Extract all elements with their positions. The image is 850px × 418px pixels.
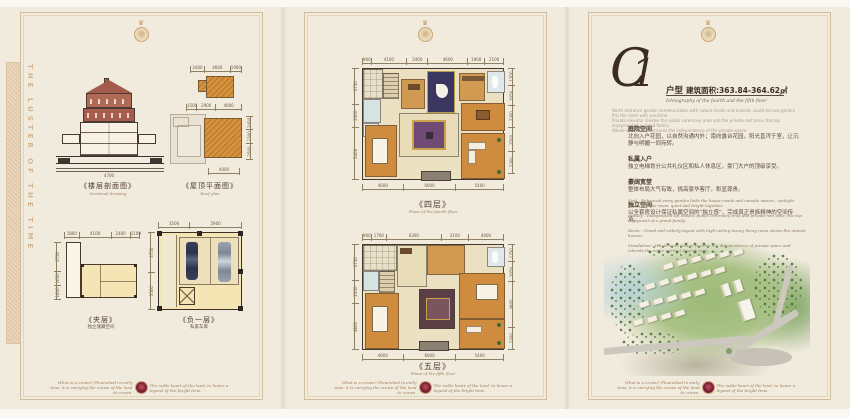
section-wing-right <box>138 134 156 144</box>
dim-value: 4800 <box>352 304 359 349</box>
dim-value: 2500 <box>246 144 253 159</box>
dim-segment: 4000 <box>215 104 242 111</box>
dim-value: 2400 <box>191 65 204 70</box>
hallway <box>397 245 427 287</box>
plant-icon <box>497 341 501 345</box>
dim-value: 2300 <box>352 281 359 303</box>
dim-value: 5900 <box>190 221 241 226</box>
column <box>238 231 243 236</box>
dim-segment: 900 <box>362 234 371 241</box>
crest-icon: ♛ <box>133 20 149 42</box>
dim-value: 2050 <box>508 86 515 105</box>
dim-value: 1800 <box>65 231 79 236</box>
dim-segment: 5400 <box>455 354 504 361</box>
dim-segment: 900 <box>362 58 371 65</box>
grand-piano <box>436 84 448 98</box>
crest-icon: ♛ <box>700 20 716 42</box>
roundabout <box>722 344 736 358</box>
page-edge-top <box>0 0 850 7</box>
dim-line: 1750205048002300 <box>508 244 515 350</box>
dim-value: 4600 <box>205 65 230 70</box>
selling-point-head: 豪阔宽堂 <box>628 179 802 187</box>
dim-segment: 5400 <box>455 184 504 191</box>
dim-value: 1650 <box>54 272 61 284</box>
dim-segment: 4600 <box>362 354 403 361</box>
dim-value: 2300 <box>508 328 515 349</box>
dim-value: 5400 <box>456 183 503 188</box>
dim-value: 6000 <box>404 353 456 358</box>
dim-line: 17002050230025002300 <box>508 68 515 174</box>
caption-sub: Roof plan <box>166 191 254 196</box>
dim-segment: 3750 <box>54 242 61 271</box>
dim-value: 3750 <box>148 233 155 272</box>
dim-value: 4100 <box>80 231 111 236</box>
dim-segment: 6000 <box>403 354 456 361</box>
floorplan-5f <box>362 244 504 350</box>
kitchen <box>459 73 485 101</box>
section-base-block <box>58 158 70 163</box>
dim-segment: 3100 <box>441 234 468 241</box>
sofa <box>466 326 482 333</box>
section-ground-lines <box>56 168 164 172</box>
panel-footer: What is a crown? Flourished in early tim… <box>41 380 241 395</box>
panel-footer: What is a crown? Flourished in early tim… <box>608 380 808 395</box>
dim-value: 2050 <box>246 117 253 129</box>
selling-point-body: 独立电梯划分公共礼仪区和私人休息区，豪门大户的顶级享受。 <box>628 164 802 171</box>
caption-mezzanine: 《夹层》 独立储藏空间 <box>54 316 148 331</box>
dim-segment: 2050 <box>508 261 515 281</box>
dim-value: 1800 <box>54 286 61 300</box>
section-windows <box>87 113 131 118</box>
caption-sub: Plane of the fourth floor <box>350 209 516 214</box>
dim-value: 4000 <box>209 167 239 172</box>
caption-roof: 《屋顶平面图》 Roof plan <box>166 182 254 196</box>
lightwell-room <box>161 235 177 307</box>
staircase <box>379 271 395 293</box>
entry-porch <box>421 171 451 181</box>
dim-value: 2400 <box>112 231 130 236</box>
dim-value: 2100 <box>485 57 503 62</box>
dim-segment: 1750 <box>508 244 515 261</box>
dim-value: 4000 <box>469 233 503 238</box>
dim-segment: 4600 <box>362 184 403 191</box>
dim-segment: 2400 <box>111 232 130 239</box>
car-icon <box>218 242 231 282</box>
plant-icon <box>497 170 501 174</box>
dim-segment: 4800 <box>352 303 359 350</box>
brochure-page: THE LUSTER OF THE TIME ♛ ♛ ♛ 4700 《楼层剖面图… <box>0 0 850 418</box>
panel-footer: What is a crown? Flourished in early tim… <box>325 380 525 395</box>
dim-segment: 2300 <box>508 327 515 350</box>
bed <box>476 284 498 300</box>
english-note-line: Yard : Enhanced entry garden links the h… <box>628 198 806 208</box>
dim-value: 3100 <box>442 233 468 238</box>
coffee-table <box>426 132 433 139</box>
dim-segment: 2050 <box>246 116 253 129</box>
dim-segment: 2400 <box>406 58 427 65</box>
english-note-line: Privacy : Independent lift divides publi… <box>628 213 806 223</box>
car-icon <box>186 242 198 280</box>
selling-point: 豪阔宽堂 整体布局大气有致，挑高豪华客厅，彰显尊贵。 <box>628 179 802 194</box>
dim-line: 37503500 <box>148 232 155 310</box>
dim-value: 2400 <box>407 57 427 62</box>
sofa <box>468 150 476 164</box>
dim-value: 4000 <box>216 103 241 108</box>
fold-line <box>280 7 286 409</box>
footer-script-right: The noble heart of the land, to honor a … <box>150 383 234 393</box>
floorplan-4f <box>362 68 504 180</box>
column <box>134 264 137 267</box>
dim-segment: 4100 <box>79 232 111 239</box>
caption-sub: Sectional drawing <box>52 191 164 196</box>
dim-segment: 2300 <box>246 129 253 143</box>
dim-value: 900 <box>363 233 371 238</box>
dim-value: 1700 <box>372 233 386 238</box>
dim-value: 4600 <box>363 183 403 188</box>
dim-segment: 2900 <box>196 104 215 111</box>
roundabout-green <box>726 348 732 354</box>
bathtub <box>492 251 498 263</box>
seal-icon <box>136 382 147 393</box>
dim-segment: 1900 <box>467 58 484 65</box>
column <box>238 269 243 274</box>
dim-value: 2300 <box>508 106 515 127</box>
dim-segment: 3750 <box>148 232 155 272</box>
dim-value: 3750 <box>352 245 359 280</box>
terrace <box>363 245 397 271</box>
dim-value: 2500 <box>508 128 515 151</box>
decorative-strip <box>6 62 21 344</box>
dim-line: 375023004800 <box>352 244 359 350</box>
piano-room <box>427 71 455 113</box>
dim-line: 375023005400 <box>352 68 359 180</box>
mezzanine-room <box>81 264 137 298</box>
column <box>81 264 84 267</box>
dim-segment: 1900 <box>230 66 242 73</box>
caption-sub: 独立储藏空间 <box>54 325 148 331</box>
caption-sub: 私家车库 <box>148 325 250 331</box>
dim-value: 1750 <box>508 245 515 261</box>
seal-icon <box>420 382 431 393</box>
sofa <box>468 142 486 150</box>
caption-label: 《负一层》 <box>148 316 250 325</box>
basement-plan <box>158 232 242 310</box>
fold-line <box>564 7 570 409</box>
dim-value: 2900 <box>197 103 215 108</box>
selling-point-head: 庭院空间 <box>628 126 802 134</box>
unit-logo: C1 <box>610 46 656 93</box>
master-bedroom <box>365 125 397 177</box>
column <box>134 295 137 298</box>
selling-point: 私属入户 独立电梯划分公共礼仪区和私人休息区，豪门大户的顶级享受。 <box>628 156 802 171</box>
dim-line: 205023002500 <box>246 116 253 160</box>
dim-line: 460060005400 <box>362 184 504 191</box>
selling-point: 庭院空间 北向入户花园，以自然沟通内外；南向露台花园，阳光直泻于室，让沉静与明媚… <box>628 126 802 148</box>
dining-table <box>476 110 490 120</box>
living-hall <box>399 113 459 157</box>
aerial-rendering <box>604 236 810 376</box>
dim-value: 1900 <box>468 57 484 62</box>
dim-segment: 3750 <box>352 68 359 104</box>
roof-outline <box>173 117 189 127</box>
dim-line: 9001700630031004000 <box>362 234 504 241</box>
dim-segment: 2300 <box>508 151 515 174</box>
section-base-block <box>150 158 162 163</box>
dim-segment: 1800 <box>54 285 61 301</box>
dim-line: 1800410024001100 <box>64 232 140 239</box>
dim-value: 5400 <box>352 128 359 179</box>
dim-segment: 2050 <box>508 85 515 105</box>
dining-room <box>461 103 505 131</box>
dim-value: 2300 <box>352 105 359 127</box>
section-total-dim: 4700 <box>86 173 132 178</box>
column <box>157 231 162 236</box>
dim-value: 4100 <box>372 57 407 62</box>
caption-sub: Plane of the fifth floor <box>350 371 516 376</box>
bathroom <box>363 271 379 291</box>
unit-subtitle: Ichnography of the fourth and the fifth … <box>666 99 767 104</box>
footer-script-right: The noble heart of the land, to honor a … <box>717 383 801 393</box>
caption-label: 《屋顶平面图》 <box>166 182 254 191</box>
dim-segment: 1700 <box>508 68 515 85</box>
crown-icon: ♛ <box>133 20 149 27</box>
crown-icon: ♛ <box>417 20 433 27</box>
footer-script-left: What is a crown? Flourished in early tim… <box>616 380 700 395</box>
dim-line: 375016501800 <box>54 242 61 300</box>
section-base <box>56 156 164 164</box>
page-edge-bottom <box>0 409 850 418</box>
crest-icon: ♛ <box>417 20 433 42</box>
counter <box>462 76 484 81</box>
dim-segment: 1800 <box>64 232 79 239</box>
dim-value: 1500 <box>187 103 196 108</box>
dim-line: 4000 <box>208 168 240 175</box>
logo-digit: 1 <box>632 51 656 95</box>
seal-icon <box>703 382 714 393</box>
wall-line <box>100 281 136 282</box>
garage-divider <box>210 238 211 284</box>
staircase <box>383 73 399 99</box>
dim-value: 1100 <box>131 231 139 236</box>
dim-value: 3500 <box>159 221 189 226</box>
road-interchange <box>730 348 792 366</box>
dim-segment: 2300 <box>508 105 515 127</box>
caption-basement: 《负一层》 私家车库 <box>148 316 250 331</box>
dim-line: 240046001900 <box>190 66 242 73</box>
master-bedroom <box>365 293 399 349</box>
dim-value: 1900 <box>231 65 241 70</box>
crown-icon: ♛ <box>700 20 716 27</box>
dim-segment: 4600 <box>204 66 230 73</box>
footer-script-left: What is a crown? Flourished in early tim… <box>49 380 133 395</box>
caption-label: 《四层》 <box>350 200 516 209</box>
dim-segment: 4100 <box>371 58 407 65</box>
selling-point-body: 北向入户花园，以自然沟通内外；南向露台花园，阳光直泻于室，让沉静与明媚一同宛转。 <box>628 134 802 148</box>
family-room <box>427 245 465 275</box>
dim-value: 4800 <box>508 282 515 326</box>
desk <box>408 84 420 90</box>
dim-segment: 2300 <box>352 104 359 127</box>
dim-value: 1700 <box>508 69 515 85</box>
crest-disc <box>418 27 433 42</box>
dim-segment: 4000 <box>468 234 504 241</box>
caption-section: 《楼层剖面图》 Sectional drawing <box>52 182 164 196</box>
footer-script-left: What is a crown? Flourished in early tim… <box>333 380 417 395</box>
section-floor-brick <box>86 93 132 108</box>
dim-segment: 3500 <box>148 272 155 310</box>
dim-line: 90041002400460019002100 <box>362 58 504 65</box>
dim-value: 3750 <box>352 69 359 104</box>
dim-value: 3500 <box>148 273 155 309</box>
dim-segment: 2500 <box>508 127 515 151</box>
footer-script-right: The noble heart of the land, to honor a … <box>434 383 518 393</box>
section-roof <box>86 80 132 93</box>
column <box>81 295 84 298</box>
crest-disc <box>134 27 149 42</box>
media-room <box>419 289 455 329</box>
dim-segment: 2100 <box>484 58 504 65</box>
dim-segment: 1700 <box>371 234 386 241</box>
section-wing-left <box>62 134 80 144</box>
caption-label: 《楼层剖面图》 <box>52 182 164 191</box>
dim-value: 6000 <box>404 183 456 188</box>
dim-segment: 1500 <box>186 104 196 111</box>
caption-label: 《夹层》 <box>54 316 148 325</box>
dim-line: 35005900 <box>158 222 242 229</box>
bed <box>372 138 388 164</box>
title-underline <box>666 89 784 96</box>
rug <box>426 298 450 320</box>
dim-value: 3750 <box>54 243 61 271</box>
caption-label: 《五层》 <box>350 362 516 371</box>
wardrobe <box>400 248 412 254</box>
plant-icon <box>497 138 501 142</box>
sitting-room <box>459 319 505 349</box>
dim-segment: 3500 <box>158 222 189 229</box>
fine-print-line: North entrance garden communicates with … <box>612 108 800 118</box>
dim-segment: 4000 <box>208 168 240 175</box>
mezzanine-void <box>66 242 81 298</box>
dim-segment: 1100 <box>130 232 140 239</box>
caption-floor5: 《五层》 Plane of the fifth floor <box>350 362 516 376</box>
selling-point-head: 私属入户 <box>628 156 802 164</box>
garage-area <box>179 237 239 285</box>
sitting-room <box>461 133 505 179</box>
bedroom <box>459 273 505 319</box>
entry-porch <box>419 341 449 351</box>
dim-line: 460060005400 <box>362 354 504 361</box>
bathroom <box>363 99 381 123</box>
dim-value: 2300 <box>508 152 515 173</box>
dim-segment: 4600 <box>427 58 467 65</box>
roof-outline <box>177 125 201 157</box>
dim-segment: 1650 <box>54 271 61 284</box>
plant-icon <box>497 323 501 327</box>
caption-floor4: 《四层》 Plane of the fourth floor <box>350 200 516 214</box>
bathroom <box>487 71 505 93</box>
dim-segment: 2300 <box>352 280 359 303</box>
dim-segment: 4800 <box>508 281 515 326</box>
dim-value: 2050 <box>508 262 515 281</box>
study-room <box>401 79 425 109</box>
section-floors-lower <box>80 122 138 156</box>
column <box>157 306 162 311</box>
column <box>197 231 202 236</box>
dim-segment: 6300 <box>386 234 441 241</box>
roof-outline-cluster <box>170 114 206 164</box>
dim-segment: 3750 <box>352 244 359 280</box>
dim-segment: 5400 <box>352 127 359 180</box>
dim-value: 5400 <box>456 353 503 358</box>
dim-segment: 6000 <box>403 184 456 191</box>
bathroom <box>487 247 505 267</box>
roof-shape <box>206 76 234 98</box>
elevator-shaft <box>179 287 195 305</box>
terrace <box>363 69 383 99</box>
section-floor-brick <box>83 108 135 122</box>
dim-value: 6300 <box>387 233 441 238</box>
bed <box>372 306 388 332</box>
dim-value: 900 <box>363 57 371 62</box>
selling-point-body: 整体布局大气有致，挑高豪华客厅，彰显尊贵。 <box>628 187 802 194</box>
dim-line: 150029004000 <box>186 104 242 111</box>
dim-segment: 5900 <box>189 222 242 229</box>
dim-value: 4600 <box>363 353 403 358</box>
dim-value: 4600 <box>428 57 467 62</box>
dim-segment: 2500 <box>246 143 253 160</box>
dim-segment: 2400 <box>190 66 204 73</box>
column <box>238 306 243 311</box>
bathtub <box>492 76 498 88</box>
roof-shape-main <box>204 118 242 158</box>
section-windows <box>90 99 128 104</box>
crest-disc <box>701 27 716 42</box>
dim-value: 2300 <box>246 130 253 143</box>
